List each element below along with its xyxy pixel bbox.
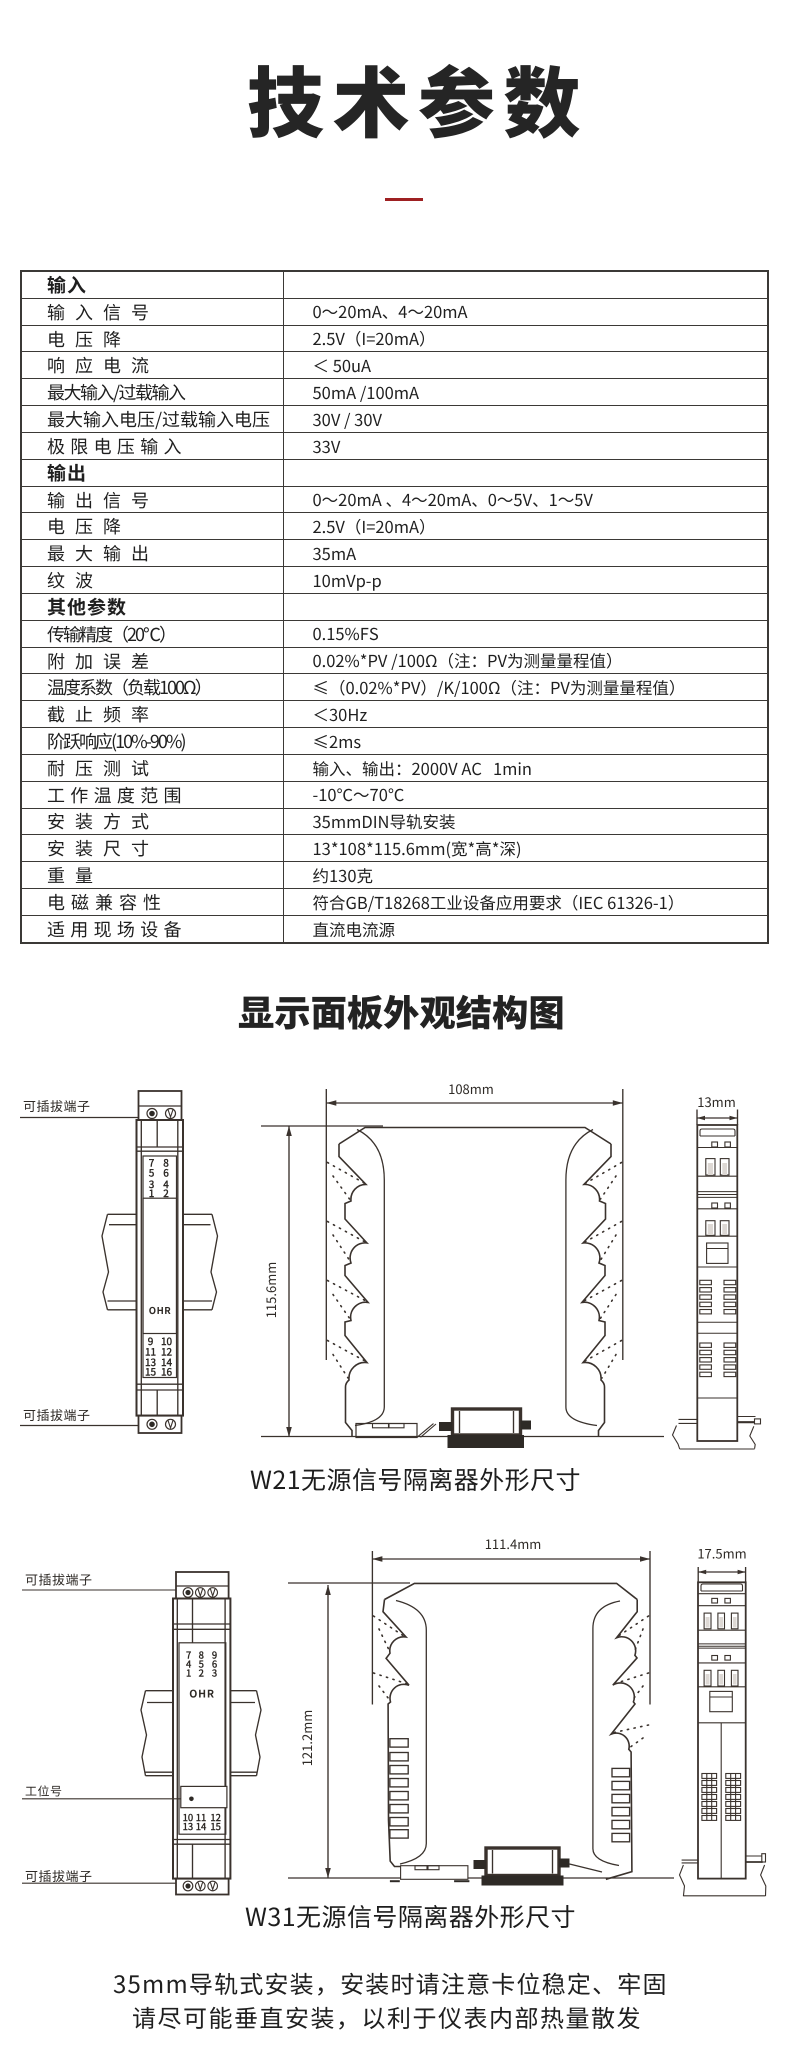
svg-text:OHR: OHR [189, 1687, 215, 1702]
svg-text:17.5mm: 17.5mm [697, 1544, 746, 1563]
svg-text:13: 13 [183, 1819, 194, 1833]
svg-text:115.6mm: 115.6mm [261, 1262, 280, 1319]
svg-text:15: 15 [210, 1819, 221, 1833]
svg-text:108mm: 108mm [448, 1080, 494, 1098]
svg-text:14: 14 [196, 1819, 207, 1833]
svg-text:可插拔端子: 可插拔端子 [25, 1570, 93, 1589]
svg-text:OHR: OHR [149, 1303, 172, 1317]
svg-text:15: 15 [145, 1363, 157, 1378]
svg-text:2: 2 [199, 1665, 204, 1679]
svg-text:可插拔端子: 可插拔端子 [25, 1866, 93, 1885]
svg-text:111.4mm: 111.4mm [485, 1534, 542, 1553]
svg-text:13mm: 13mm [697, 1092, 736, 1111]
svg-text:可插拔端子: 可插拔端子 [23, 1405, 91, 1424]
svg-text:2: 2 [163, 1185, 169, 1200]
svg-text:121.2mm: 121.2mm [297, 1710, 316, 1767]
svg-text:3: 3 [212, 1665, 217, 1679]
svg-text:16: 16 [161, 1363, 173, 1378]
svg-text:1: 1 [186, 1665, 191, 1679]
svg-text:可插拔端子: 可插拔端子 [23, 1096, 91, 1115]
svg-text:1: 1 [149, 1185, 155, 1200]
svg-text:工位号: 工位号 [25, 1783, 63, 1800]
